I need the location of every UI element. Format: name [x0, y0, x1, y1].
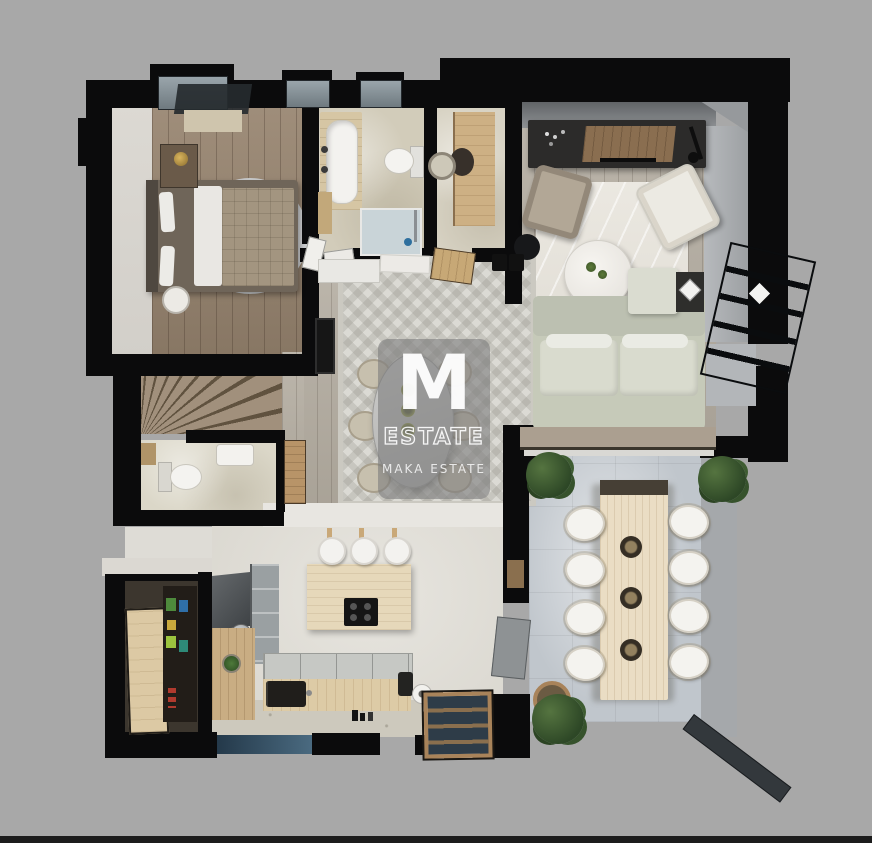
sofa-pillow-1	[546, 334, 612, 348]
wall-plant-round	[222, 654, 241, 673]
table-bowl-1	[620, 536, 642, 558]
coffee-table-plant-1	[586, 262, 596, 272]
bed-duvet-fold	[194, 186, 222, 286]
bedroom-bottom-wall	[86, 354, 318, 376]
pantry-left-wall	[105, 576, 125, 734]
pantry-item-green	[166, 598, 176, 611]
pantry-item-lime	[166, 636, 176, 648]
laundry-round-rug	[428, 152, 456, 180]
watermark-subtitle: MAKA ESTATE	[382, 462, 486, 476]
nightstand	[160, 144, 198, 188]
counter-bottle-2	[360, 713, 365, 721]
bedroom-window-sill	[184, 110, 242, 132]
hall-console-2	[380, 254, 431, 274]
cooktop	[344, 598, 378, 626]
wc-door	[284, 440, 306, 504]
shower-drain	[404, 238, 412, 246]
tub-faucet	[321, 146, 328, 153]
counter-bottle-1	[352, 710, 358, 721]
bar-stool-2	[350, 537, 378, 565]
bed-pillow-2	[159, 246, 175, 287]
bed-quilt	[222, 188, 294, 286]
sofa-cushion-1	[540, 340, 618, 396]
sofa-cushion-2	[620, 340, 698, 396]
watermark-monogram: M	[396, 341, 472, 425]
watermark-title: ESTATE	[383, 425, 485, 450]
table-bowl-3	[620, 639, 642, 661]
bath-window	[286, 80, 330, 108]
coffee-machine	[398, 672, 413, 696]
floor-lamp-head	[688, 152, 699, 163]
pantry-item-blue	[179, 600, 188, 612]
floor-plan-render: M ESTATE MAKA ESTATE	[0, 0, 872, 843]
table-bowl-2	[620, 587, 642, 609]
image-bottom-border	[0, 836, 872, 843]
floor-mat-1	[492, 254, 507, 271]
coffee-table-plant-2	[598, 270, 607, 279]
toilet-bowl	[384, 148, 414, 174]
terrace-table-dark-end	[600, 480, 668, 495]
bar-stool-1	[318, 537, 346, 565]
kitchen-backsplash	[212, 628, 255, 720]
wc-bottom-wall	[118, 510, 284, 526]
laundry-door	[430, 247, 476, 285]
bottom-wall-mid	[312, 733, 380, 755]
bottom-window	[217, 735, 312, 754]
kitchen-terrace-window-frame	[507, 560, 524, 588]
stairs-left-wall	[113, 376, 141, 526]
top-wall-a3	[328, 80, 360, 108]
terrace-plant-top-right	[698, 456, 746, 502]
pantry-item-teal	[179, 640, 188, 652]
entrance-porch	[423, 691, 492, 758]
laundry-window	[360, 80, 402, 108]
pantry-top-edge	[105, 574, 212, 581]
wc-sink	[216, 444, 254, 466]
bedroom-left-bump	[78, 118, 90, 166]
console-decor	[545, 132, 549, 136]
kitchen-terrace-wall-top	[503, 503, 529, 603]
nightstand-lamp	[174, 152, 188, 166]
pantry-kitchen-divider	[198, 572, 212, 737]
cooktop-burner	[350, 603, 357, 610]
sofa-back-band	[520, 427, 716, 450]
pantry-item-red-stack	[168, 688, 176, 708]
shower-glass-bar	[414, 210, 417, 242]
counter-glass-top	[263, 653, 413, 681]
kitchen-sink	[266, 681, 306, 707]
hall-kitchen-wall-band	[263, 503, 503, 527]
pantry-item-yellow	[167, 620, 176, 630]
sofa-chaise	[628, 268, 678, 314]
bath-niche-shelf	[318, 192, 332, 234]
counter-bottle-3	[368, 712, 373, 721]
terrace-plant-bottom-left	[532, 694, 584, 744]
bed-headboard	[146, 180, 158, 292]
tv-console-handle	[600, 158, 656, 162]
living-top-wall	[440, 58, 790, 102]
hall-console-1	[318, 259, 380, 283]
wc-wood-box	[141, 443, 156, 465]
terrace-door-gray	[491, 616, 531, 679]
sofa-pillow-2	[622, 334, 688, 348]
tub-faucet-2	[321, 166, 328, 173]
maka-estate-watermark: M ESTATE MAKA ESTATE	[378, 339, 490, 499]
shower-tray	[360, 208, 422, 256]
tv-console-wood-top	[582, 126, 676, 162]
hall-wall-art	[315, 318, 335, 374]
bed-pillow-1	[159, 192, 176, 233]
terrace-plant-top-left	[526, 452, 572, 498]
bar-stool-3	[383, 537, 411, 565]
wc-toilet-bowl	[170, 464, 202, 490]
bedroom-floor-lamp	[162, 286, 190, 314]
bottom-wall-left	[105, 732, 217, 758]
floor-mat-2	[509, 254, 524, 271]
kitchen-faucet	[306, 690, 312, 696]
kitchen-hood	[212, 572, 250, 630]
wc-top-wall	[186, 430, 284, 443]
